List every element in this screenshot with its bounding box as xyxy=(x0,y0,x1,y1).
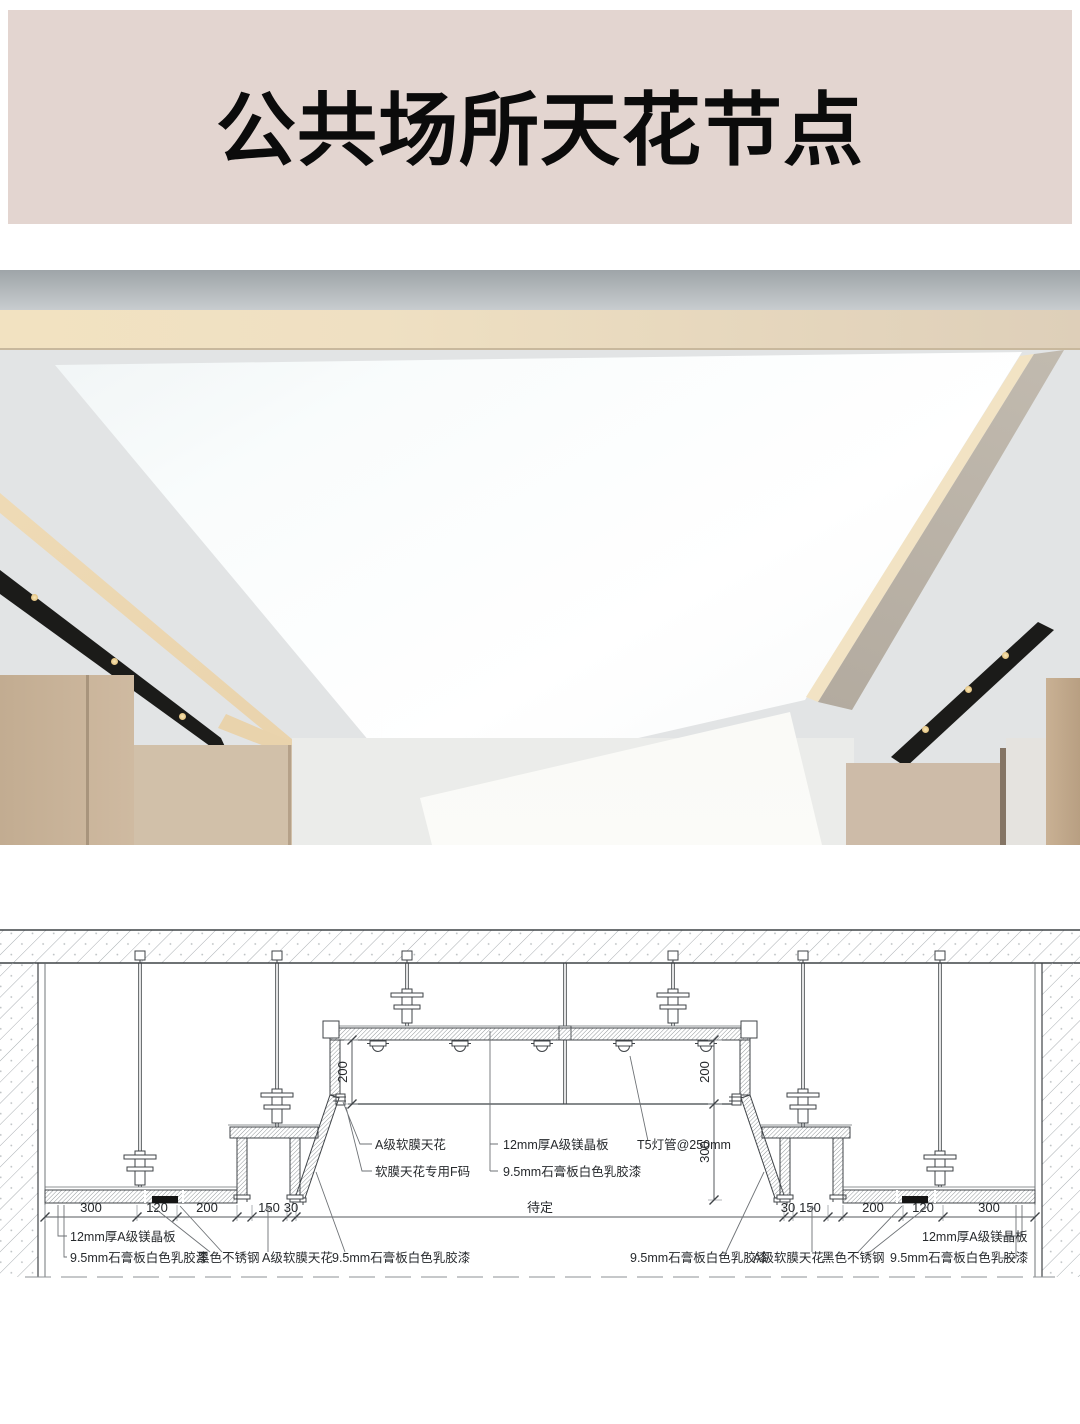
label-right-black-steel: 黑色不锈钢 xyxy=(822,1250,885,1265)
dim-center-tbd: 待定 xyxy=(527,1200,553,1215)
label-right-board: 12mm厚A级镁晶板 xyxy=(922,1229,1028,1244)
photo-wood-wall-panel xyxy=(0,675,134,845)
track-spot-light xyxy=(111,658,118,665)
dim-300-right: 300 xyxy=(978,1200,1000,1215)
dim-300-left: 300 xyxy=(80,1200,102,1215)
dim-120-left: 120 xyxy=(146,1200,168,1215)
label-right-membrane: A级软膜天花 xyxy=(753,1250,824,1265)
t5-lamps xyxy=(367,1041,717,1052)
callout-board-line2: 9.5mm石膏板白色乳胶漆 xyxy=(503,1164,641,1179)
label-left-gypsum-slope: 9.5mm石膏板白色乳胶漆 xyxy=(332,1250,470,1265)
stretch-membrane xyxy=(333,1094,742,1105)
photo-ceiling-fascia xyxy=(0,270,1080,310)
callouts: A级软膜天花 软膜天花专用F码 12mm厚A级镁晶板 9.5mm石膏板白色乳胶漆… xyxy=(375,1137,731,1179)
callout-membrane-line1: A级软膜天花 xyxy=(375,1137,446,1152)
photo-wood-seam xyxy=(288,745,291,845)
track-spot-light xyxy=(965,686,972,693)
dim-150-right: 150 xyxy=(799,1200,821,1215)
dim-30-right: 30 xyxy=(781,1200,795,1215)
label-left-board: 12mm厚A级镁晶板 xyxy=(70,1229,176,1244)
photo-cove-light-band xyxy=(0,310,1080,350)
track-spot-light xyxy=(179,713,186,720)
photo-beige-wall xyxy=(846,763,1006,845)
dim-120-right: 120 xyxy=(912,1200,934,1215)
track-spot-light xyxy=(31,594,38,601)
wall-left xyxy=(0,963,45,1277)
dim-200-vert-left: 200 xyxy=(335,1061,350,1083)
wall-right xyxy=(1035,963,1080,1277)
dim-200-right: 200 xyxy=(862,1200,884,1215)
callout-t5-lamp: T5灯管@250mm xyxy=(637,1137,731,1152)
label-right-gypsum: 9.5mm石膏板白色乳胶漆 xyxy=(890,1250,1028,1265)
photo-wood-wall-panel-2 xyxy=(134,745,292,845)
label-left-gypsum: 9.5mm石膏板白色乳胶漆 xyxy=(70,1250,208,1265)
bottom-labels: 12mm厚A级镁晶板 9.5mm石膏板白色乳胶漆 黑色不锈钢 A级软膜天花 9.… xyxy=(70,1229,1028,1265)
label-right-gypsum-slope: 9.5mm石膏板白色乳胶漆 xyxy=(630,1250,768,1265)
callout-membrane-line2: 软膜天花专用F码 xyxy=(375,1164,470,1179)
ceiling-section-drawing: 300 120 200 150 30 待定 30 150 200 120 300… xyxy=(0,905,1080,1305)
structural-slab xyxy=(0,930,1080,963)
dim-200-left: 200 xyxy=(196,1200,218,1215)
track-spot-light xyxy=(922,726,929,733)
track-spot-light xyxy=(1002,652,1009,659)
label-left-membrane: A级软膜天花 xyxy=(262,1250,333,1265)
photo-wood-seam xyxy=(86,675,89,845)
header-banner: 公共场所天花节点 xyxy=(8,10,1072,224)
top-ceiling-board xyxy=(323,1021,757,1095)
photo-right-wood-column xyxy=(1046,678,1080,845)
dim-30-left: 30 xyxy=(284,1200,298,1215)
vertical-dimensions: 200 200 300 xyxy=(335,1036,722,1205)
callout-board-line1: 12mm厚A级镁晶板 xyxy=(503,1137,609,1152)
ceiling-photo xyxy=(0,270,1080,845)
page-title: 公共场所天花节点 xyxy=(216,52,864,182)
label-left-black-steel: 黑色不锈钢 xyxy=(197,1250,260,1265)
dim-200-vert-right: 200 xyxy=(697,1061,712,1083)
